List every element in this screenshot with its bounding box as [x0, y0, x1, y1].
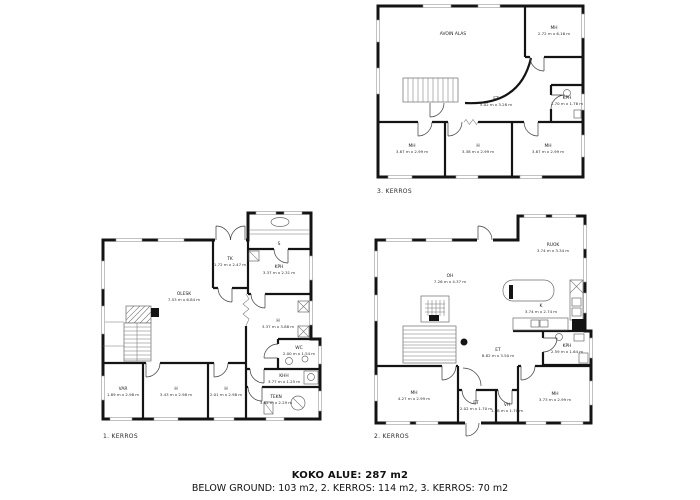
svg-text:3.73 m x 2.99 m: 3.73 m x 2.99 m — [539, 397, 571, 402]
svg-text:3.37 m x 3.88 m: 3.37 m x 3.88 m — [262, 324, 294, 329]
svg-text:2.01 m x 2.98 m: 2.01 m x 2.98 m — [210, 392, 242, 397]
svg-text:7.26 m x 4.37 m: 7.26 m x 4.37 m — [434, 279, 466, 284]
svg-text:1.72 m x 2.47 m: 1.72 m x 2.47 m — [214, 262, 246, 267]
room-label-s: S — [278, 241, 281, 247]
area-breakdown-label: BELOW GROUND: 103 m2, 2. KERROS: 114 m2,… — [0, 483, 700, 494]
stairs — [403, 326, 456, 363]
fireplace-icon — [421, 296, 449, 322]
svg-text:3.82 m x 2.29 m: 3.82 m x 2.29 m — [260, 400, 292, 405]
svg-text:3.77 m x 1.25 m: 3.77 m x 1.25 m — [268, 379, 300, 384]
shower-icon — [249, 251, 259, 261]
svg-text:7.53 m x 6.84 m: 7.53 m x 6.84 m — [168, 297, 200, 302]
stairs — [403, 78, 458, 102]
floor-1-caption: 1. KERROS — [103, 433, 138, 440]
svg-text:1.89 m x 2.98 m: 1.89 m x 2.98 m — [107, 392, 139, 397]
floor-plan-1: OLESK 7.53 m x 6.84 m TK 1.72 m x 2.47 m… — [96, 206, 341, 441]
stairs — [124, 323, 151, 361]
svg-text:2.00 m x 1.54 m: 2.00 m x 1.54 m — [283, 351, 315, 356]
floorplan-page: AVOIN ALAS MH 2.72 m x 6.16 m ET 5.02 m … — [0, 0, 700, 500]
floor-2-caption: 2. KERROS — [374, 433, 409, 440]
sink-icon — [304, 371, 318, 384]
svg-text:3.38 m x 2.99 m: 3.38 m x 2.99 m — [462, 149, 494, 154]
svg-text:5.02 m x 3.28 m: 5.02 m x 3.28 m — [480, 102, 512, 107]
floor-plan-3: AVOIN ALAS MH 2.72 m x 6.16 m ET 5.02 m … — [368, 0, 603, 200]
svg-text:2.02 m x 1.70 m: 2.02 m x 1.70 m — [460, 406, 492, 411]
svg-text:3.43 m x 2.98 m: 3.43 m x 2.98 m — [160, 392, 192, 397]
svg-text:3.87 m x 2.99 m: 3.87 m x 2.99 m — [396, 149, 428, 154]
svg-text:8.82 m x 3.50 m: 8.82 m x 3.50 m — [482, 353, 514, 358]
total-area-label: KOKO ALUE: 287 m2 — [0, 470, 700, 481]
svg-text:2.72 m x 6.16 m: 2.72 m x 6.16 m — [538, 31, 570, 36]
svg-text:1.70 m x 1.76 m: 1.70 m x 1.76 m — [551, 101, 583, 106]
svg-text:3.74 m x 2.74 m: 3.74 m x 2.74 m — [525, 309, 557, 314]
svg-text:3.74 m x 3.34 m: 3.74 m x 3.34 m — [537, 248, 569, 253]
kitchen-island — [503, 280, 554, 301]
floor-plan-2: OH 7.26 m x 4.37 m RUOK 3.74 m x 3.34 m … — [366, 203, 611, 438]
floor-3-caption: 3. KERROS — [377, 188, 412, 195]
svg-text:3.87 m x 2.99 m: 3.87 m x 2.99 m — [532, 149, 564, 154]
svg-text:2.59 m x 1.64 m: 2.59 m x 1.64 m — [551, 349, 583, 354]
svg-text:1.18 m x 1.70 m: 1.18 m x 1.70 m — [491, 408, 523, 413]
svg-text:3.37 m x 2.31 m: 3.37 m x 2.31 m — [263, 270, 295, 275]
column — [461, 339, 468, 346]
room-label-avoin-alas: AVOIN ALAS — [440, 31, 467, 37]
svg-text:4.27 m x 2.99 m: 4.27 m x 2.99 m — [398, 396, 430, 401]
